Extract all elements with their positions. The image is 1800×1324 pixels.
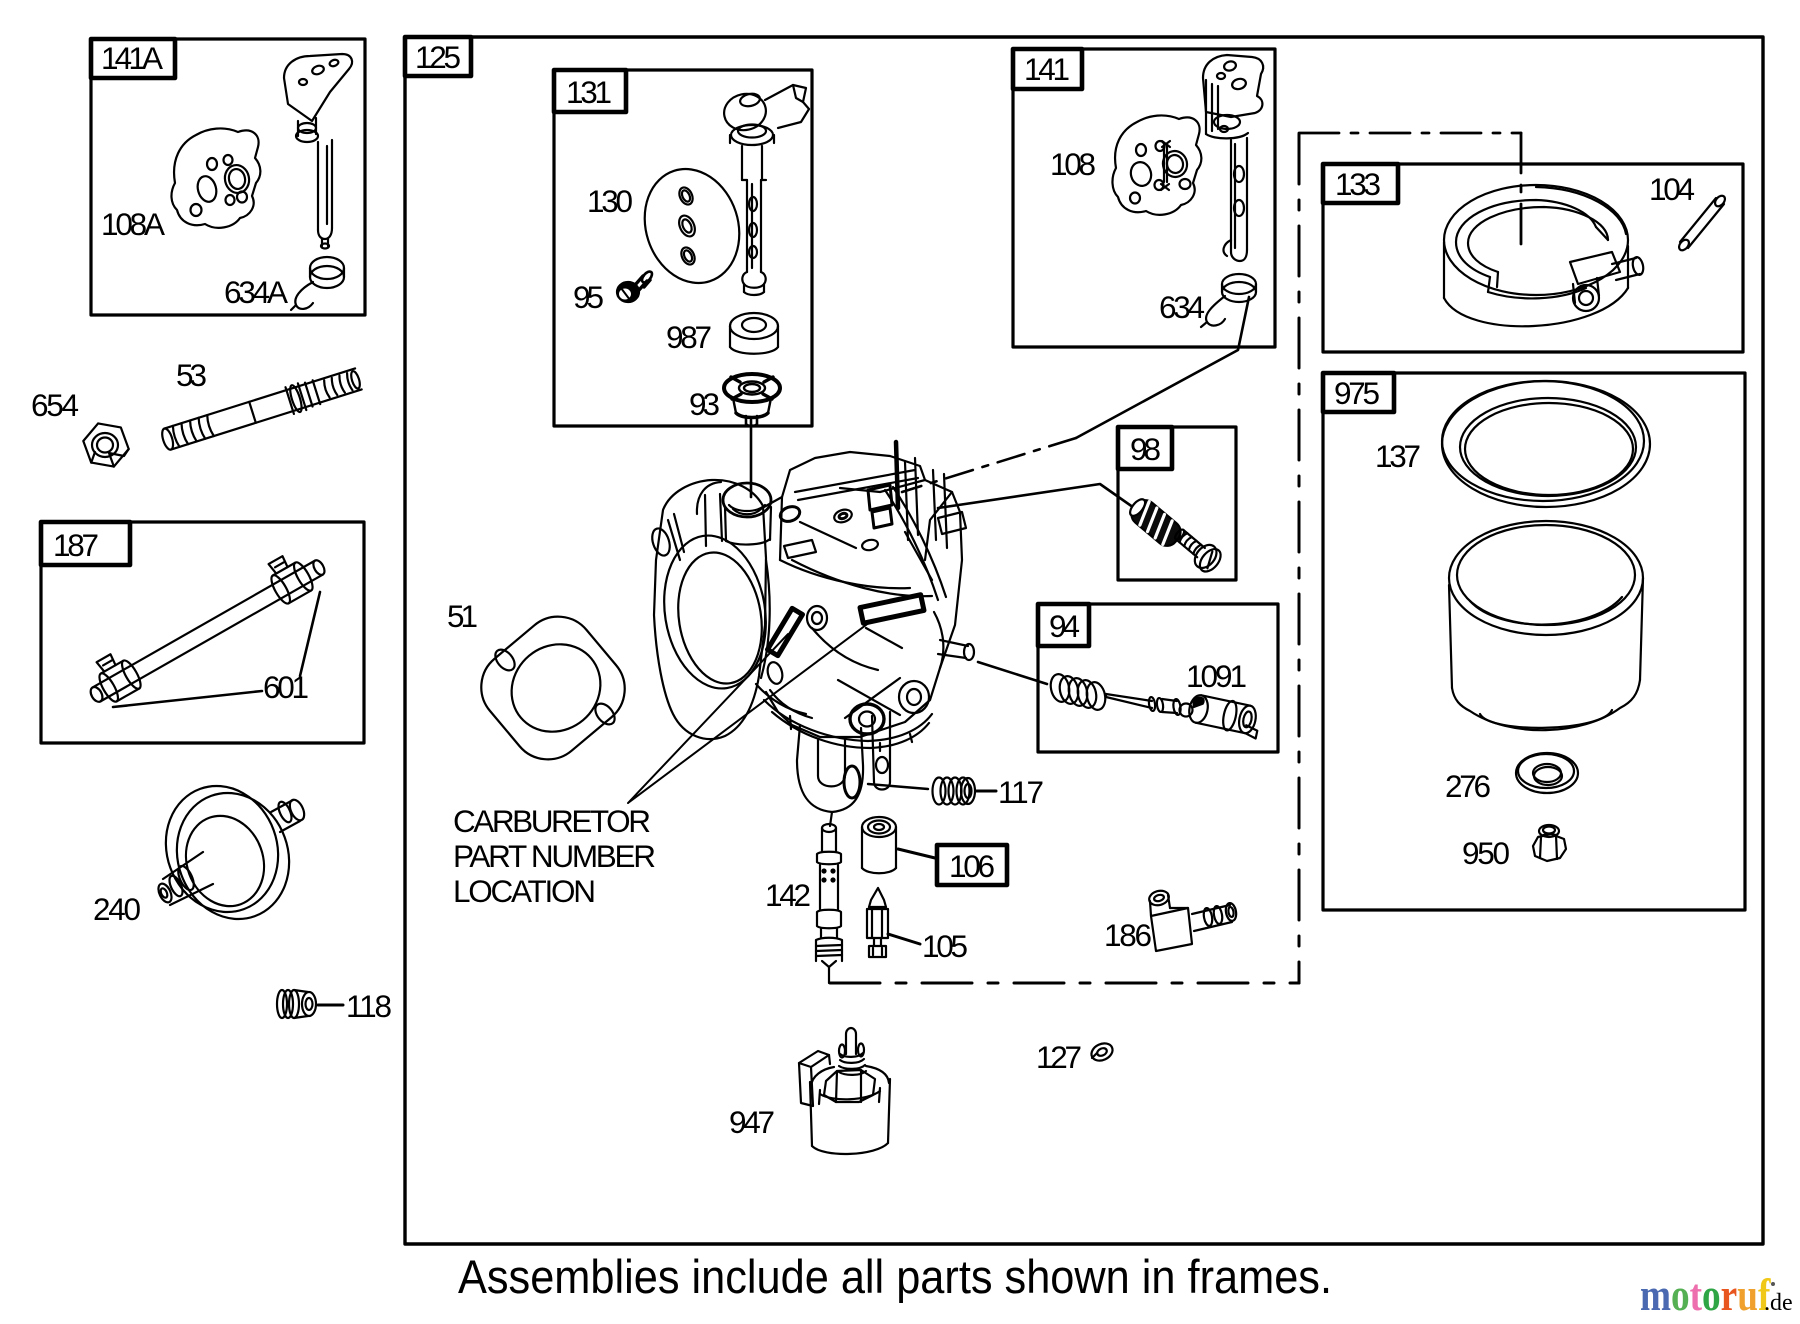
- svg-text:51: 51: [447, 598, 478, 634]
- svg-text:137: 137: [1375, 438, 1421, 474]
- svg-text:187: 187: [53, 527, 99, 563]
- svg-text:117: 117: [998, 774, 1044, 810]
- svg-text:141A: 141A: [101, 40, 163, 76]
- svg-text:93: 93: [689, 386, 720, 422]
- svg-text:motoruf: motoruf: [1640, 1270, 1771, 1321]
- svg-text:240: 240: [93, 891, 141, 927]
- svg-text:95: 95: [573, 279, 604, 315]
- svg-text:131: 131: [566, 74, 612, 110]
- svg-text:.de: .de: [1764, 1290, 1793, 1316]
- svg-text:634A: 634A: [224, 274, 288, 310]
- svg-text:106: 106: [949, 848, 995, 884]
- svg-text:98: 98: [1130, 431, 1161, 467]
- svg-text:142: 142: [765, 877, 811, 913]
- svg-text:141: 141: [1024, 51, 1070, 87]
- svg-text:125: 125: [415, 39, 461, 75]
- svg-text:104: 104: [1649, 171, 1695, 207]
- svg-text:133: 133: [1335, 166, 1381, 202]
- svg-text:1091: 1091: [1186, 658, 1247, 694]
- svg-text:987: 987: [666, 319, 712, 355]
- svg-text:108A: 108A: [101, 206, 165, 242]
- svg-text:105: 105: [922, 928, 968, 964]
- svg-text:94: 94: [1049, 608, 1080, 644]
- svg-text:947: 947: [729, 1104, 775, 1140]
- svg-text:118: 118: [346, 988, 392, 1024]
- svg-text:975: 975: [1334, 375, 1380, 411]
- svg-text:950: 950: [1462, 835, 1510, 871]
- svg-text:186: 186: [1104, 917, 1152, 953]
- svg-text:276: 276: [1445, 768, 1491, 804]
- svg-text:PART NUMBER: PART NUMBER: [453, 838, 656, 874]
- svg-text:53: 53: [176, 357, 207, 393]
- svg-text:601: 601: [263, 669, 309, 705]
- svg-text:127: 127: [1036, 1039, 1082, 1075]
- svg-text:108: 108: [1050, 146, 1096, 182]
- svg-text:634: 634: [1159, 289, 1205, 325]
- svg-text:654: 654: [31, 387, 79, 423]
- svg-text:130: 130: [587, 183, 633, 219]
- svg-text:LOCATION: LOCATION: [453, 873, 596, 909]
- svg-text:CARBURETOR: CARBURETOR: [453, 803, 651, 839]
- svg-text:Assemblies include all parts s: Assemblies include all parts shown in fr…: [458, 1250, 1332, 1303]
